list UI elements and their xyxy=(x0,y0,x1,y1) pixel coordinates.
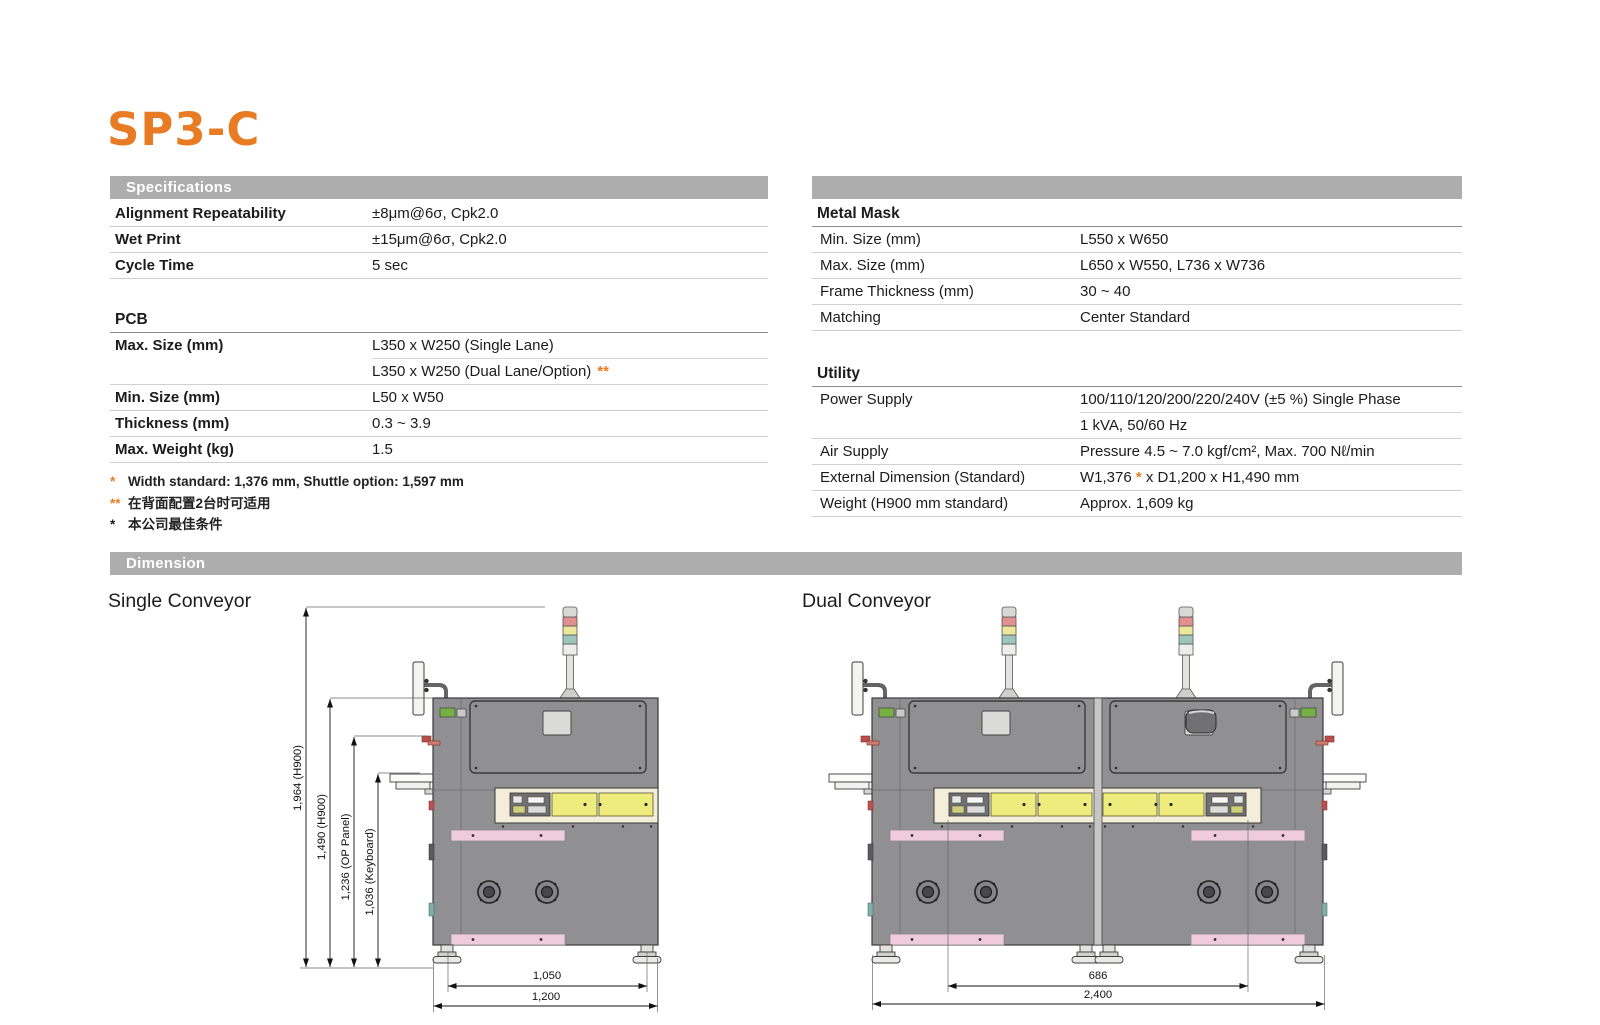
dim-inner-span: 686 xyxy=(1089,970,1108,982)
dim-op-panel-height: 1,236 (OP Panel) xyxy=(340,813,352,900)
single-conveyor-machine xyxy=(390,607,661,963)
dim-body-height: 1,490 (H900) xyxy=(316,794,328,860)
dim-overall-width: 2,400 xyxy=(1084,989,1112,1001)
dim-body-width: 1,200 xyxy=(532,991,560,1003)
dual-left-machine xyxy=(829,607,1100,963)
dual-right-machine xyxy=(1095,607,1366,963)
dim-overall-height: 1,964 (H900) xyxy=(292,745,304,811)
center-junction xyxy=(1094,698,1102,945)
single-conveyor-diagram: 1,964 (H900) 1,490 (H900) 1,236 (OP Pane… xyxy=(292,607,661,1012)
datasheet-page: SP3-C Specifications Alignment Repeatabi… xyxy=(0,0,1600,1025)
dimension-diagrams: 1,964 (H900) 1,490 (H900) 1,236 (OP Pane… xyxy=(0,0,1600,1025)
dual-conveyor-diagram: 686 2,400 xyxy=(829,607,1366,1010)
dim-feet-span: 1,050 xyxy=(533,970,561,982)
dim-keyboard-height: 1,036 (Keyboard) xyxy=(364,828,376,916)
